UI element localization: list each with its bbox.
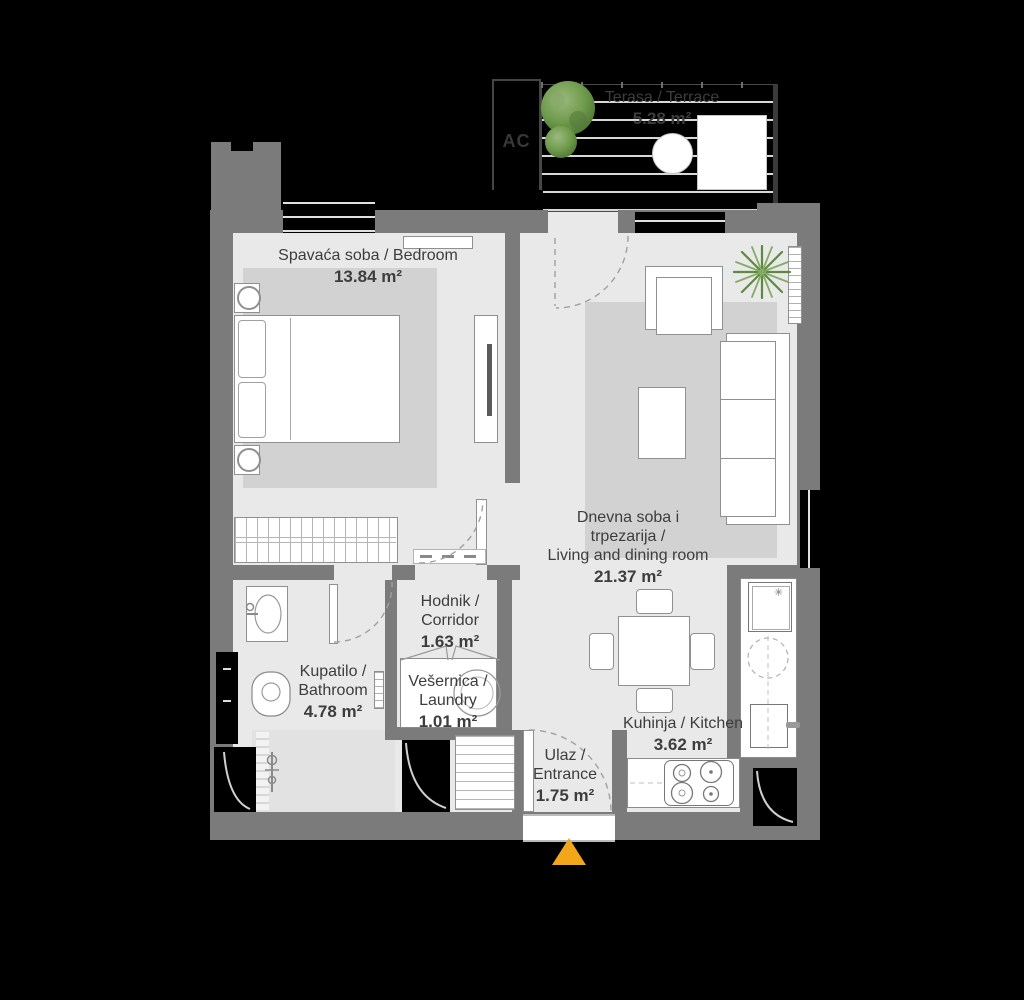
left-window-mark-1: [223, 668, 231, 670]
living-name-3: Living and dining room: [548, 546, 709, 565]
living-window: [635, 212, 725, 233]
right-window: [800, 490, 820, 568]
bathroom-sink: [246, 586, 288, 642]
shower-channel: [256, 732, 269, 810]
bathroom-area: 4.78 m²: [298, 702, 367, 721]
left-window-strip: [216, 652, 238, 744]
kitchen-sink: [750, 704, 788, 748]
terrace-door-threshold: [548, 212, 618, 233]
wall-laundry-right: [497, 580, 512, 740]
sofa-cushion-line-1: [721, 399, 775, 400]
ac-closet: AC: [492, 79, 541, 203]
dining-table: [618, 616, 690, 686]
pillow-top: [238, 320, 266, 378]
bathroom-bottom-window: [402, 740, 450, 812]
ac-label: AC: [503, 131, 531, 152]
dining-chair-bottom: [636, 688, 673, 713]
bathroom-name-2: Bathroom: [298, 681, 367, 700]
faucet-icon: [786, 722, 800, 728]
wall-bottom: [210, 812, 820, 840]
nightstand-bottom-knob: [237, 448, 261, 472]
left-window-mark-2: [223, 700, 231, 702]
corridor-label: Hodnik / Corridor 1.63 m²: [421, 592, 480, 651]
laundry-area: 1.01 m²: [408, 712, 487, 731]
fridge-inner: [752, 586, 790, 630]
entrance-label: Ulaz / Entrance 1.75 m²: [533, 746, 597, 805]
wall-top-a: [210, 210, 548, 233]
kitchen-area: 3.62 m²: [623, 735, 743, 754]
wall-bedroom-bottom-b: [392, 565, 415, 580]
bed-duvet-line: [290, 318, 291, 440]
wall-bathroom-right: [385, 580, 397, 730]
living-name-2: trpezarija /: [548, 527, 709, 546]
window-recess-strip: [377, 190, 543, 210]
wall-bedroom-bottom-c: [487, 565, 520, 580]
nightstand-top-knob: [237, 286, 261, 310]
wall-notch: [231, 142, 253, 151]
terrace-area: 5.28 m²: [605, 109, 719, 128]
bedroom-window: [283, 190, 375, 233]
shower-floor: [252, 730, 395, 812]
bathroom-door-leaf: [329, 584, 338, 644]
threshold-dashes: [420, 555, 480, 558]
shoe-cabinet: [455, 735, 515, 810]
laundry-name-1: Vešernica /: [408, 672, 487, 691]
bottom-right-window: [753, 768, 797, 826]
bedroom-label: Spavaća soba / Bedroom 13.84 m²: [278, 246, 458, 286]
armchair-seat: [656, 277, 712, 335]
pillow-bottom: [238, 382, 266, 438]
entrance-name-2: Entrance: [533, 765, 597, 784]
corridor-name-1: Hodnik /: [421, 592, 480, 611]
sofa-seat: [720, 341, 776, 517]
wardrobe-rail: [236, 537, 396, 543]
living-radiator: [788, 246, 802, 324]
bedroom-area: 13.84 m²: [278, 267, 458, 286]
coffee-table: [638, 387, 686, 459]
corridor-area: 1.63 m²: [421, 632, 480, 651]
living-area: 21.37 m²: [548, 567, 709, 586]
bathroom-label: Kupatilo / Bathroom 4.78 m²: [298, 662, 367, 721]
entrance-arrow: [552, 838, 586, 865]
laundry-label: Vešernica / Laundry 1.01 m²: [408, 672, 487, 731]
terrace-name: Terasa / Terrace: [605, 88, 719, 107]
living-name-1: Dnevna soba i: [548, 508, 709, 527]
dining-chair-right: [690, 633, 715, 670]
entrance-area: 1.75 m²: [533, 786, 597, 805]
wall-kitchen-top: [727, 565, 797, 578]
bottom-left-window: [214, 747, 256, 812]
living-label: Dnevna soba i trpezarija / Living and di…: [548, 508, 709, 586]
bedroom-name: Spavaća soba / Bedroom: [278, 246, 458, 265]
dining-chair-left: [589, 633, 614, 670]
corridor-name-2: Corridor: [421, 611, 480, 630]
wall-bedroom-bottom-a: [233, 565, 334, 580]
floor-plan: AC Terasa / Terrace 5.28 m²: [0, 0, 1024, 1000]
terrace-round-table: [652, 133, 693, 174]
snowflake-icon: ✳: [774, 586, 783, 599]
kitchen-name: Kuhinja / Kitchen: [623, 714, 743, 733]
bathroom-name-1: Kupatilo /: [298, 662, 367, 681]
bathroom-radiator: [374, 671, 384, 709]
wall-bedroom-living: [505, 233, 520, 483]
laundry-name-2: Laundry: [408, 691, 487, 710]
dresser: [474, 315, 498, 443]
kitchen-label: Kuhinja / Kitchen 3.62 m²: [623, 714, 743, 754]
terrace-label: Terasa / Terrace 5.28 m²: [605, 88, 719, 128]
sofa-cushion-line-2: [721, 458, 775, 459]
tv: [487, 344, 492, 416]
stove: [664, 760, 734, 806]
entrance-name-1: Ulaz /: [533, 746, 597, 765]
dining-chair-top: [636, 589, 673, 614]
